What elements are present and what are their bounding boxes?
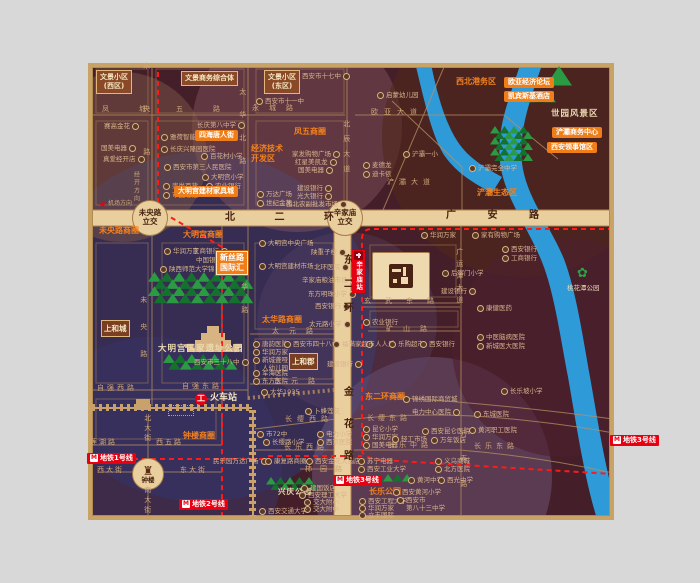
road-label: 西五路: [156, 438, 183, 447]
district-label: 凤五商圈: [294, 127, 326, 137]
poi-icon: [164, 248, 171, 255]
road-label: 长缨西路: [285, 415, 333, 424]
poi-icon: [363, 434, 370, 441]
road-label: 莲湖路: [90, 438, 117, 447]
poi-icon: [343, 73, 350, 80]
poi-label: 中医脑病医院: [477, 333, 525, 341]
poi-icon: [472, 232, 479, 239]
poi-icon: [435, 458, 442, 465]
poi-icon: [161, 134, 168, 141]
poi-label: 大明宫建材市场: [259, 262, 314, 270]
poi-icon: [408, 477, 415, 484]
metro-line-1-badge: M地铁1号线: [87, 453, 136, 464]
area-badge: 新丝路 国际汇: [216, 251, 248, 275]
train-station: 工火车站: [195, 393, 237, 405]
poi-label: 福满家超市: [333, 340, 375, 348]
poi-label: 西安黄河小学: [393, 488, 441, 496]
poi-label: 赛高金花: [104, 122, 139, 130]
poi-icon: [502, 246, 509, 253]
poi-icon: [325, 185, 332, 192]
poi-icon: [333, 151, 340, 158]
location-map: 文景小区 (西区)文景商务综合体文景小区 (东区)新丝路 国际汇上和城上和郡四海…: [0, 0, 700, 583]
poi-label: 西安市十七中: [302, 72, 350, 80]
metro-logo-icon: M: [613, 436, 621, 444]
railway-logo-icon: 工: [195, 393, 207, 405]
poi-icon: [132, 123, 139, 130]
poi-icon: [284, 341, 291, 348]
poi-icon: [160, 266, 167, 273]
poi-icon: [359, 512, 366, 519]
poi-icon: [438, 477, 445, 484]
poi-label: 西安银行: [502, 245, 537, 253]
poi-label: 民乐园万达广场: [213, 457, 268, 465]
poi-icon: [477, 343, 484, 350]
road-label: 永城路: [252, 104, 303, 113]
poi-label: 华润万家: [253, 348, 288, 356]
poi-label: 西安市四十八中: [284, 340, 339, 348]
poi-label: 启蒙幼儿园: [377, 91, 419, 99]
road-label: 玄武东路: [364, 297, 448, 306]
poi-icon: [435, 466, 442, 473]
airport-arrow-icon: ◀: [99, 201, 104, 208]
poi-label: 大明宫小学: [202, 173, 244, 181]
poi-icon: [259, 240, 266, 247]
district-label: 经济技术 开发区: [251, 144, 287, 164]
district-label: 钟楼商圈: [183, 431, 215, 441]
poi-label: 后宰门小学: [442, 269, 484, 277]
poi-label: 万年饭店: [431, 436, 466, 444]
poi-label: 光大银行: [297, 192, 332, 200]
poi-label: 国美电器: [101, 144, 136, 152]
road-label: 未央路: [142, 62, 151, 191]
poi-icon: [477, 305, 484, 312]
poi-label: 迪卡侬: [363, 170, 392, 178]
direction-label: 经开方向: [132, 171, 140, 203]
poi-icon: [238, 122, 245, 129]
poi-icon: [257, 200, 264, 207]
metro-logo-icon: M: [182, 500, 190, 508]
metro-line-2-badge: M地铁2号线: [179, 499, 228, 510]
road-label: 广 安 路: [446, 210, 553, 223]
poi-icon: [477, 334, 484, 341]
poi-icon: [265, 458, 272, 465]
poi-label: 西安工业大学: [358, 465, 406, 473]
road-label: 浐灞大道: [387, 178, 435, 187]
poi-badge: 凯宾斯基酒店: [504, 91, 554, 102]
park-label: 大明宫国家遗址公园: [158, 344, 244, 355]
poi-icon: [330, 159, 337, 166]
road-label: 欧亚大道: [371, 108, 423, 117]
poi-icon: [403, 151, 410, 158]
poi-icon: [420, 341, 427, 348]
poi-icon: [358, 466, 365, 473]
area-label: 世园风景区: [551, 109, 599, 120]
poi-label: 义乌商城: [435, 457, 470, 465]
poi-icon: [164, 164, 171, 171]
bell-tower-icon: ♜: [143, 465, 154, 477]
project-station-badge: 辛家庙站: [352, 250, 365, 293]
district-label: 西北港务区: [456, 77, 496, 87]
poi-label: 长庆第八中学: [197, 121, 245, 129]
poi-badge: 浐灞商务中心: [552, 127, 602, 138]
poi-icon: [340, 201, 347, 208]
road-label: 长缨东路: [367, 414, 411, 423]
poi-label: 西安市三十八中: [194, 358, 249, 366]
poi-label: 东方医院: [253, 377, 288, 385]
road-label: 东二环: [340, 254, 353, 326]
poi-label: 农业银行: [363, 318, 398, 326]
poi-label: 建设银行: [441, 287, 476, 295]
road-label: 东大街: [180, 466, 207, 475]
area-badge: 文景小区 (西区): [96, 70, 132, 94]
poi-badge: 西安领事馆区: [547, 142, 597, 153]
poi-icon: [253, 341, 260, 348]
poi-label: 唐韵医院: [253, 340, 288, 348]
poi-label: 立丰国际: [359, 511, 394, 519]
poi-icon: [377, 92, 384, 99]
road-label: 矿山路: [386, 325, 437, 334]
poi-label: 西安市 第八十三中学: [397, 496, 445, 512]
poi-icon: [392, 436, 399, 443]
poi-icon: [403, 396, 410, 403]
poi-icon: [422, 428, 429, 435]
road-label: 自强西路: [97, 384, 137, 393]
poi-label: 交大附中: [304, 505, 339, 513]
poi-icon: [201, 153, 208, 160]
poi-label: 家发购物广场: [292, 150, 340, 158]
poi-icon: [501, 388, 508, 395]
poi-icon: [163, 192, 170, 199]
road-label: 西大街: [97, 466, 124, 475]
poi-icon: [469, 165, 476, 172]
poi-icon: [502, 255, 509, 262]
poi-icon: [333, 341, 340, 348]
poi-icon: [474, 411, 481, 418]
poi-icon: [431, 437, 438, 444]
poi-icon: [453, 409, 460, 416]
poi-label: 浐灞完全中学: [469, 164, 517, 172]
district-label: 东二环商圈: [365, 392, 405, 402]
poi-icon: [393, 489, 400, 496]
poi-badge: 四海唐人街: [195, 130, 238, 141]
poi-badge: 大明宫建材家具城: [174, 186, 238, 197]
poi-icon: [355, 361, 362, 368]
poi-label: 西北农副批发市场: [286, 200, 347, 208]
poi-icon: [363, 319, 370, 326]
poi-label: 西安市十一中: [256, 97, 304, 105]
poi-icon: [242, 359, 249, 366]
poi-label: 万达广场: [257, 190, 292, 198]
poi-label: 康复路商圈: [265, 457, 307, 465]
poi-label: 西光中学: [438, 476, 473, 484]
poi-label: 西安市第三人民医院: [164, 163, 232, 171]
area-badge: 上和郡: [289, 353, 318, 370]
poi-icon: [259, 508, 266, 515]
poi-label: 锦绣国际商贸城: [403, 395, 458, 403]
poi-icon: [263, 439, 270, 446]
project-mini-logo: [354, 251, 363, 260]
poi-label: 长缨路小学: [263, 438, 305, 446]
poi-icon: [163, 183, 170, 190]
poi-label: 长乐坡小学: [501, 387, 543, 395]
metro-logo-icon: M: [90, 454, 98, 462]
poi-label: 卜蜂莲花: [305, 407, 340, 415]
poi-icon: [442, 270, 449, 277]
poi-label: 新城医大医院: [477, 342, 525, 350]
poi-label: 国美电器: [298, 166, 333, 174]
poi-label: 建设银行: [297, 184, 332, 192]
poi-icon: [253, 349, 260, 356]
poi-label: 百花村小学: [201, 152, 243, 160]
poi-label: 乐购超市: [389, 340, 424, 348]
district-label: 未央路商圈: [99, 226, 139, 236]
poi-label: 建设银行: [327, 360, 362, 368]
poi-label: 东城医院: [474, 410, 509, 418]
poi-label: 家有购物广场: [472, 231, 520, 239]
poi-icon: [138, 156, 145, 163]
road-label: 太元路: [272, 327, 323, 336]
road-label: 凤城五路: [102, 105, 250, 114]
district-label: 浐灞生态区: [477, 188, 517, 198]
poi-label: 红星美凯龙: [295, 158, 337, 166]
poi-icon: [363, 442, 370, 449]
poi-label: 西安交通大学: [259, 507, 307, 515]
poi-icon: [469, 288, 476, 295]
poi-icon: [253, 378, 260, 385]
area-badge: 文景商务综合体: [181, 71, 238, 86]
poi-label: 昆仑小学: [363, 425, 398, 433]
area-badge: 文景小区 (东区): [264, 70, 300, 94]
poi-label: 康健医药: [477, 304, 512, 312]
poi-badge: 欧亚经济论坛: [504, 77, 554, 88]
poi-icon: [261, 389, 268, 396]
poi-icon: [129, 145, 136, 152]
poi-label: 西安银行: [420, 340, 455, 348]
poi-label: 麦德龙: [363, 161, 392, 169]
poi-icon: [256, 98, 263, 105]
poi-icon: [469, 427, 476, 434]
poi-label: 真爱经开店: [103, 155, 145, 163]
direction-label: 机场方向: [108, 200, 132, 208]
poi-icon: [161, 146, 168, 153]
poi-label: 工商银行: [502, 254, 537, 262]
poi-icon: [202, 174, 209, 181]
poi-label: 苏宁电器: [358, 457, 393, 465]
metro-line-3-badge: M地铁3号线: [610, 435, 659, 446]
poi-icon: [421, 232, 428, 239]
poi-icon: [326, 167, 333, 174]
poi-icon: [305, 408, 312, 415]
poi-label: 世纪金花: [257, 199, 292, 207]
poi-icon: [306, 458, 313, 465]
poi-label: 北方医院: [435, 465, 470, 473]
poi-label: 大明宫中央广场: [259, 239, 314, 247]
poi-label: 军海医院: [253, 369, 288, 377]
poi-icon: [363, 171, 370, 178]
poi-label: 大华1935: [261, 388, 300, 396]
poi-label: 黄河职工医院: [469, 426, 517, 434]
area-badge: 上和城: [101, 320, 130, 337]
park-label: 桃花潭公园: [567, 284, 600, 292]
poi-icon: [363, 162, 370, 169]
taohuatan-flower-icon: ✿: [577, 267, 588, 280]
road-label: 北大街: [143, 414, 152, 444]
road-label: 长乐东路: [474, 442, 518, 451]
road-label: 北 二 环: [225, 212, 352, 225]
poi-icon: [389, 341, 396, 348]
poi-label: 轻工市场: [392, 435, 427, 443]
poi-icon: [325, 193, 332, 200]
poi-label: 华润万家: [421, 231, 456, 239]
road-label: 未央路: [139, 296, 148, 377]
road-label: 南大街: [143, 486, 152, 516]
road-label: 金花路: [340, 386, 353, 482]
road-label: 广运潭大道: [455, 248, 464, 308]
district-label: 大明宫商圈: [183, 230, 223, 240]
poi-icon: [259, 263, 266, 270]
poi-icon: [363, 426, 370, 433]
poi-icon: [257, 431, 264, 438]
poi-label: 浐灞一小: [403, 150, 438, 158]
poi-icon: [257, 191, 264, 198]
poi-label: 西安昆仑医院: [422, 427, 470, 435]
poi-icon: [358, 458, 365, 465]
poi-icon: [253, 357, 260, 364]
poi-label: 市72中: [257, 430, 287, 438]
poi-icon: [253, 370, 260, 377]
metro-line-3-badge: M地铁3号线: [333, 475, 382, 486]
poi-icon: [317, 439, 324, 446]
poi-icon: [317, 431, 324, 438]
poi-label: 电力中心医院: [412, 408, 460, 416]
metro-logo-icon: M: [336, 476, 344, 484]
road-label: 北辰大道: [342, 120, 351, 180]
poi-icon: [397, 497, 404, 504]
labels-layer: 文景小区 (西区)文景商务综合体文景小区 (东区)新丝路 国际汇上和城上和郡四海…: [0, 0, 700, 583]
road-label: 太华北路: [238, 88, 247, 180]
district-label: 太华路商圈: [262, 315, 302, 325]
road-label: 自强东路: [182, 382, 222, 391]
